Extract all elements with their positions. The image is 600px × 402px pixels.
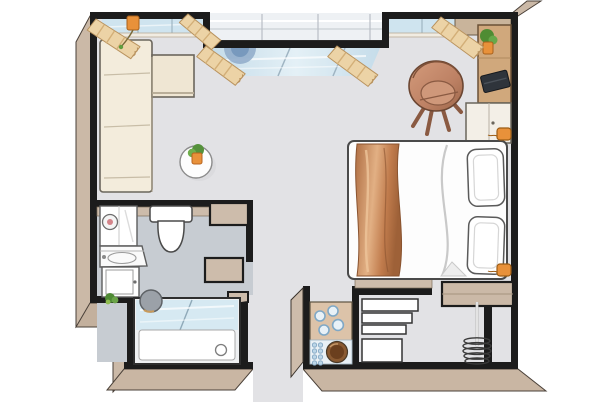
hall-top-wall [355, 288, 432, 295]
wall-lamp-bottom [497, 264, 511, 276]
kitchen-left-wall-face [291, 288, 303, 377]
washing-machine [100, 206, 137, 246]
sofa-body [100, 40, 152, 192]
pillow-top [467, 148, 505, 206]
pillar-lower [205, 258, 243, 282]
closet-partition-wall [484, 306, 492, 364]
washbasin [100, 246, 147, 267]
base-cabinet [102, 267, 139, 297]
vase [127, 16, 139, 30]
top-wall-right [382, 12, 518, 19]
copper-throw-blanket [356, 144, 402, 276]
bay-front-wall [203, 41, 389, 48]
bay-outside-glazing [203, 13, 389, 41]
storage-box [362, 339, 402, 362]
double-bed [348, 141, 507, 279]
chair-seat [421, 81, 455, 105]
left-wall [90, 12, 97, 303]
bathroom-door-opening [246, 262, 253, 295]
bottom-left-wall-face [107, 369, 253, 390]
wall-lamp-top [497, 128, 511, 140]
pillar-upper [210, 203, 248, 225]
round-sink [327, 342, 348, 363]
sink-bowl [330, 345, 344, 359]
cabinet-knob [133, 280, 136, 283]
cabinet-knob [491, 121, 494, 124]
kitchen-right-wall [352, 286, 359, 366]
sofa-chaise [152, 55, 194, 97]
plant-leaves [106, 300, 111, 305]
wall-desk [478, 25, 511, 103]
hall-top-wall-face [355, 279, 432, 288]
floor-plan-canvas [0, 0, 600, 402]
plant-pot [483, 42, 493, 54]
bathroom-right-wall-lower [240, 295, 248, 365]
basin-tap [102, 255, 106, 259]
plant-leaves [112, 297, 119, 304]
stool-seat [140, 290, 162, 312]
lamp-cord [488, 135, 497, 136]
right-wall [511, 12, 518, 369]
round-stool [140, 290, 162, 312]
vase-leaf [119, 45, 123, 49]
toilet-cistern [150, 206, 192, 222]
kitchen-left-wall [303, 286, 310, 366]
tub-drain [216, 345, 227, 356]
washer-dial-center [107, 219, 113, 225]
kitchenette [310, 302, 352, 365]
lamp-cord [488, 271, 497, 272]
plant-pot [192, 153, 202, 164]
floor-plan [0, 0, 600, 402]
tub-left-wall [127, 298, 134, 369]
bottom-right-wall-face [303, 369, 546, 391]
